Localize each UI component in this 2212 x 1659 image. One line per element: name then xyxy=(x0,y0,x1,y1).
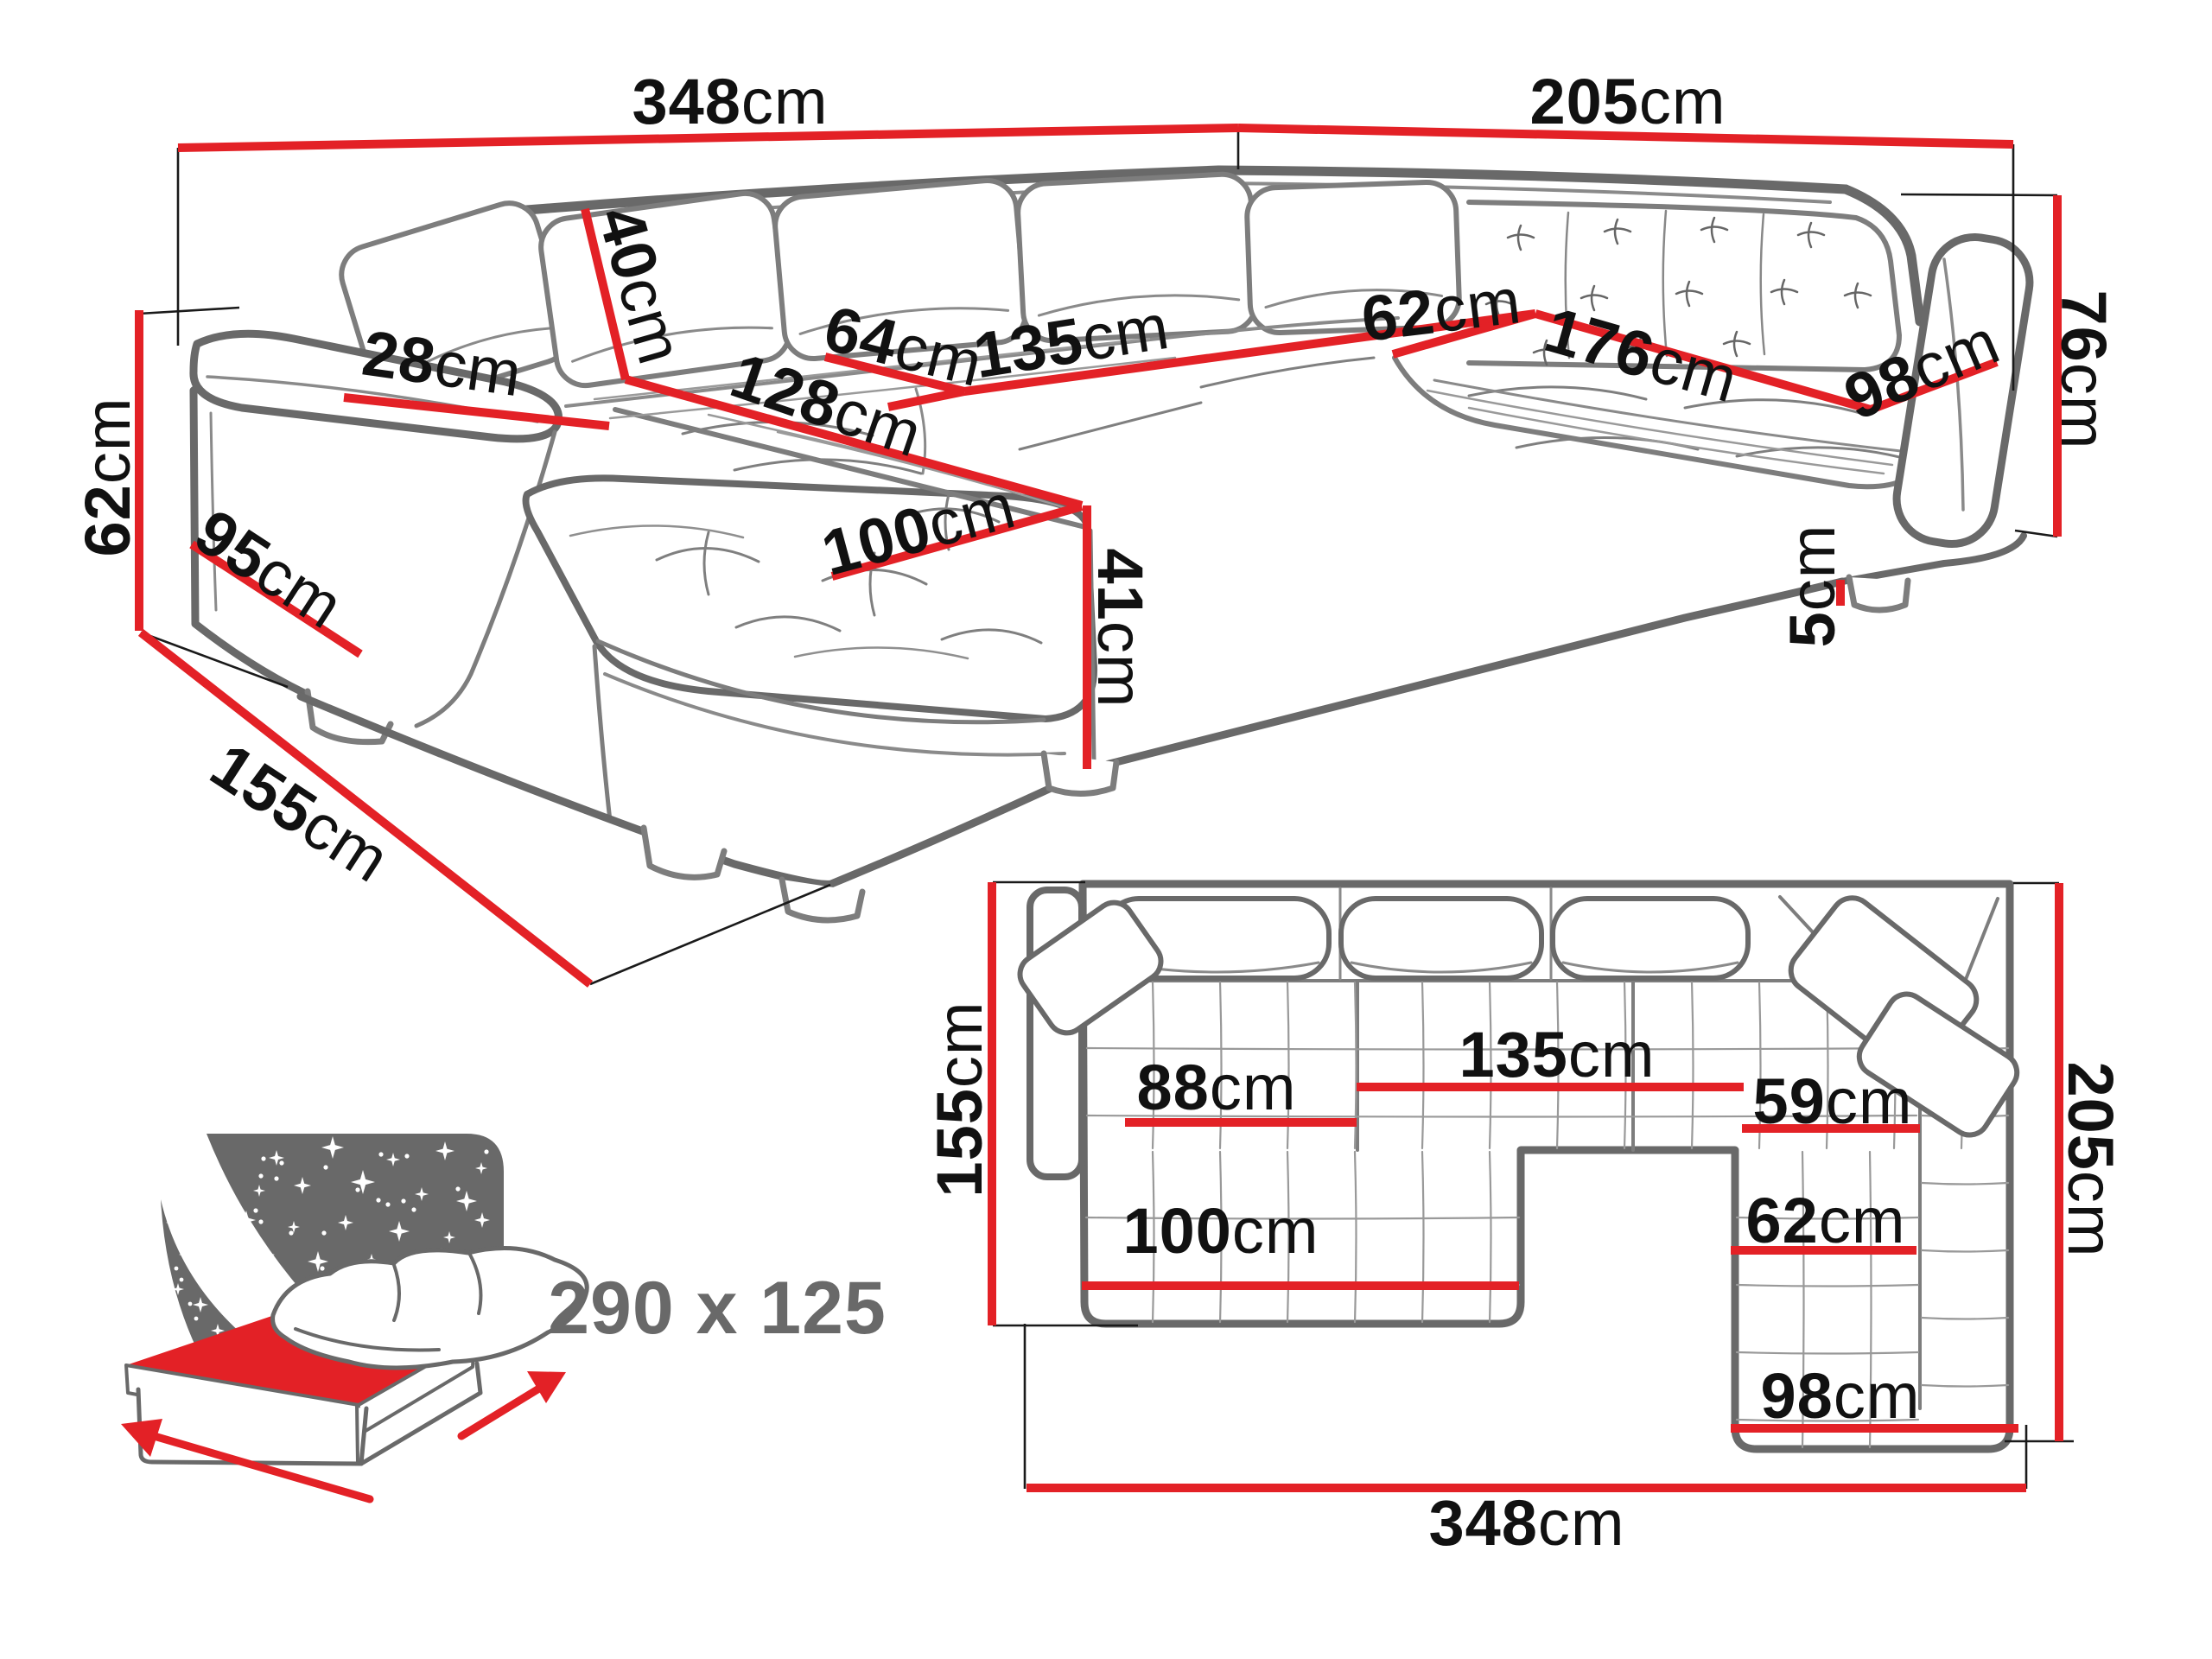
svg-text:88cm: 88cm xyxy=(1137,1052,1297,1123)
svg-text:62cm: 62cm xyxy=(1746,1185,1906,1256)
svg-text:205cm: 205cm xyxy=(2056,1061,2127,1257)
svg-text:62cm: 62cm xyxy=(72,397,143,557)
svg-text:348cm: 348cm xyxy=(632,66,828,137)
svg-text:205cm: 205cm xyxy=(1529,66,1726,137)
svg-text:348cm: 348cm xyxy=(1428,1487,1624,1559)
svg-text:5cm: 5cm xyxy=(1777,524,1848,648)
svg-text:290 x 125: 290 x 125 xyxy=(548,1267,887,1350)
svg-text:76cm: 76cm xyxy=(2049,290,2120,450)
svg-text:59cm: 59cm xyxy=(1753,1065,1913,1137)
svg-text:100cm: 100cm xyxy=(1122,1195,1319,1267)
svg-text:98cm: 98cm xyxy=(1761,1360,1921,1432)
svg-text:155cm: 155cm xyxy=(924,1001,995,1197)
svg-text:41cm: 41cm xyxy=(1085,549,1157,709)
svg-text:135cm: 135cm xyxy=(1459,1019,1655,1090)
